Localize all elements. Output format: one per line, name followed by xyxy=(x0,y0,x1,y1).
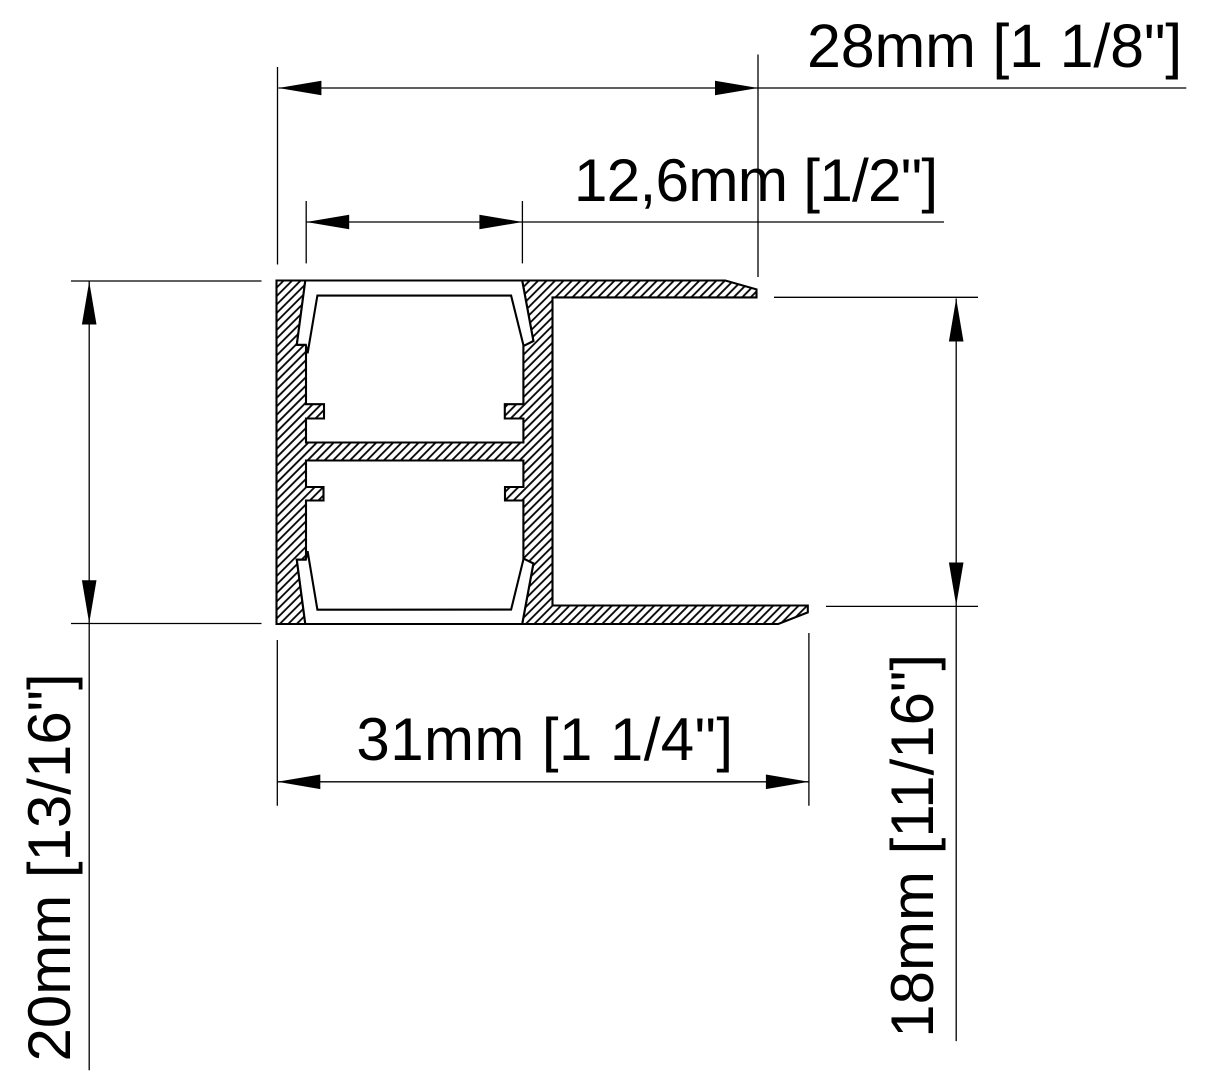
svg-text:28mm [1 1/8"]: 28mm [1 1/8"] xyxy=(807,12,1182,80)
svg-text:12,6mm [1/2"]: 12,6mm [1/2"] xyxy=(574,146,937,214)
svg-text:31mm [1 1/4"]: 31mm [1 1/4"] xyxy=(356,706,733,773)
svg-text:20mm [13/16"]: 20mm [13/16"] xyxy=(16,673,83,1061)
svg-text:18mm [11/16"]: 18mm [11/16"] xyxy=(879,654,946,1038)
